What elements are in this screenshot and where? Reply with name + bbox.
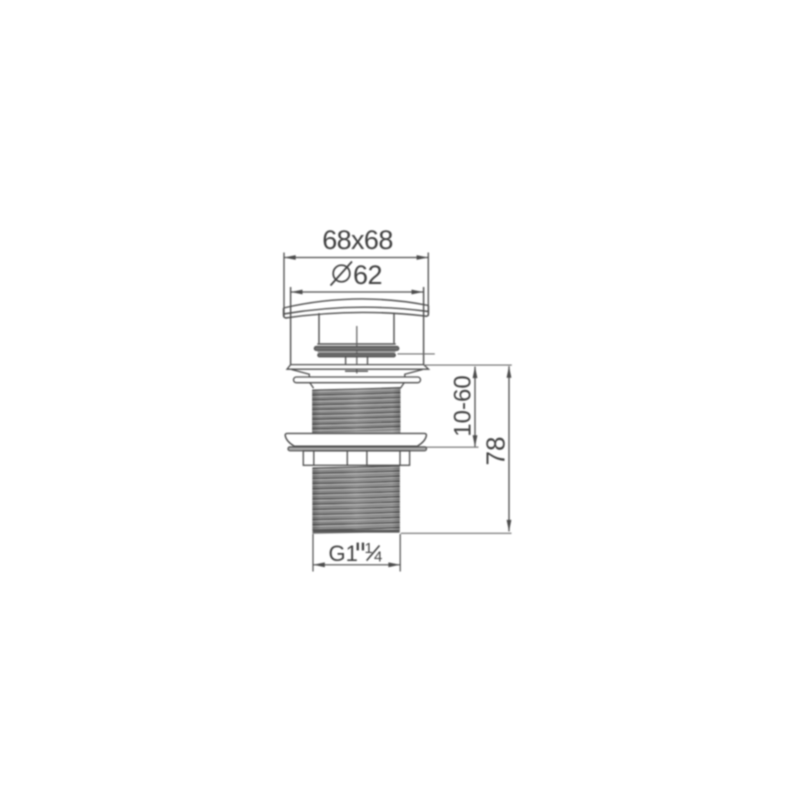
svg-text:78: 78 — [481, 437, 511, 466]
svg-text:G1: G1 — [329, 541, 358, 566]
svg-text:4: 4 — [374, 549, 382, 566]
svg-text:62: 62 — [353, 260, 382, 290]
svg-text:68x68: 68x68 — [322, 225, 393, 255]
svg-text:10-60: 10-60 — [450, 375, 477, 436]
